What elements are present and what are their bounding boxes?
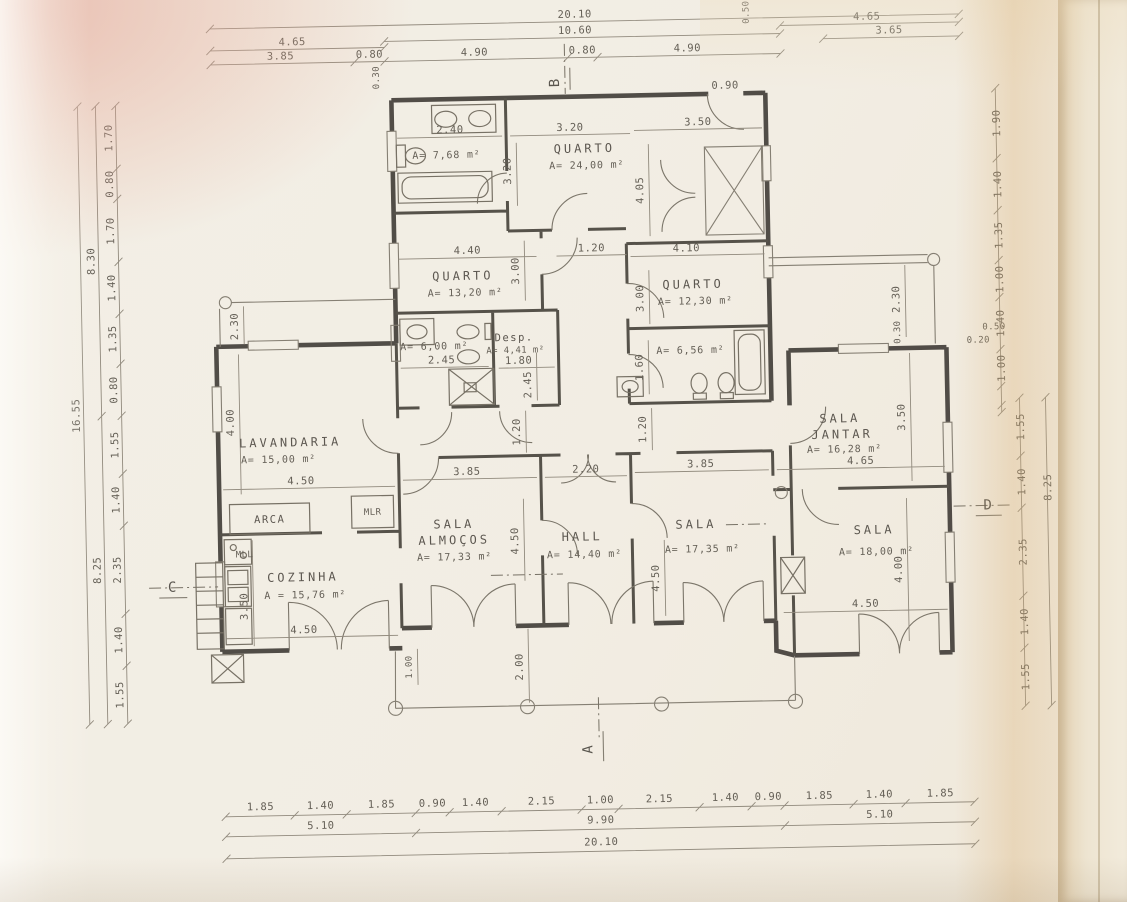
dim-label: 20.10 [557, 8, 591, 21]
dim-label: 20.10 [584, 836, 618, 849]
dim-label: 9.90 [587, 814, 615, 827]
sink-icon [407, 325, 427, 339]
dim-label: 3.00 [510, 257, 523, 285]
dim-label: 2.30 [890, 285, 903, 313]
bidet-icon [718, 372, 734, 392]
section-marker-b: B [547, 79, 563, 88]
dim-label: 2.20 [572, 463, 600, 476]
dim-label: 10.60 [558, 24, 592, 37]
dim-label: 1.40 [106, 274, 119, 302]
dim-label: 0.90 [711, 79, 739, 92]
room-name-quarto-main: QUARTO [554, 141, 616, 156]
room-area-lavandaria: A= 15,00 m² [241, 454, 316, 467]
dim-label: 4.40 [454, 245, 482, 258]
room-name-sala-almocos-2: ALMOÇOS [418, 532, 490, 547]
dim-label: 4.00 [893, 555, 906, 583]
dim-label: 1.00 [996, 354, 1009, 382]
room-area-despensa: A= 4,41 m² [486, 345, 544, 356]
dim-label: 1.20 [637, 416, 650, 444]
dim-label: 2.45 [428, 354, 456, 367]
floor-plan-drawing: B A C D 20.10 10.60 4.65 3.85 0.80 4.90 … [0, 0, 1127, 902]
room-area-sala-jantar: A= 16,28 m² [807, 444, 882, 457]
dim-label: 0.30 [893, 320, 903, 343]
dim-label: 1.70 [103, 124, 116, 152]
dim-label: 4.05 [634, 177, 647, 205]
dim-label: 0.50 [982, 322, 1005, 332]
dim-label: 1.40 [110, 486, 123, 514]
dim-label: 1.00 [994, 265, 1007, 293]
dim-label: 3.20 [502, 157, 515, 185]
dim-label: 1.40 [307, 800, 335, 813]
dim-label: 1.60 [633, 354, 646, 382]
dimensions-bottom: 1.85 1.40 1.85 0.90 1.40 2.15 1.00 2.15 … [247, 787, 955, 855]
dim-label: 8.30 [85, 248, 98, 276]
dim-label: 2.15 [528, 795, 556, 808]
dim-label: 1.90 [991, 109, 1004, 137]
scanned-floor-plan-photo: B A C D 20.10 10.60 4.65 3.85 0.80 4.90 … [0, 0, 1127, 902]
dim-label: 1.35 [993, 221, 1006, 249]
section-marker-a: A [580, 745, 596, 754]
dim-label: 3.65 [875, 24, 903, 37]
dim-label: 3.85 [453, 466, 481, 479]
section-marker-c: C [168, 580, 177, 596]
room-area-quarto-main: A= 24,00 m² [549, 160, 624, 173]
dim-label: 4.00 [225, 409, 238, 437]
dim-label: 0.80 [104, 170, 117, 198]
equip-label-mll: MLL [236, 550, 254, 560]
dim-label: 3.20 [556, 121, 584, 134]
toilet-icon [457, 325, 479, 339]
room-area-bath-mid: A= 6,00 m² [400, 341, 468, 353]
equip-label-arca: ARCA [254, 514, 286, 527]
dim-label: 1.40 [866, 788, 894, 801]
dim-label: 3.50 [684, 116, 712, 129]
room-area-sala-center: A= 17,35 m² [665, 543, 740, 556]
dim-label: 3.50 [896, 403, 909, 431]
dim-label: 16.55 [70, 399, 83, 433]
dim-label: 4.90 [674, 42, 702, 55]
dim-label: 1.40 [113, 626, 126, 654]
dim-label: 0.90 [419, 797, 447, 810]
dim-label: 2.15 [646, 793, 674, 806]
porch-column-icon [520, 700, 534, 714]
dim-label: 1.40 [712, 791, 740, 804]
room-name-hall: HALL [562, 529, 603, 544]
dim-label: 4.50 [852, 598, 880, 611]
dim-label: 5.10 [307, 820, 335, 833]
door-swing-arcs [278, 90, 939, 666]
room-name-sala-right: SALA [853, 522, 894, 537]
dim-label: 1.35 [107, 325, 120, 353]
porch-column-icon [654, 697, 668, 711]
dimensions-right: 1.90 1.40 1.35 1.00 1.40 1.00 0.50 0.20 … [962, 109, 1058, 692]
dim-label: 0.80 [356, 48, 384, 61]
toilet-icon [691, 373, 707, 393]
dim-label: 1.55 [109, 431, 122, 459]
dim-label: 5.10 [866, 808, 894, 821]
dim-label: 4.50 [650, 564, 663, 592]
dim-label: 1.85 [247, 801, 275, 814]
sink-icon [469, 110, 491, 126]
dim-label: 2.35 [111, 556, 124, 584]
dim-label: 1.85 [927, 787, 955, 800]
room-area-sala-almocos: A= 17,33 m² [417, 551, 492, 564]
dim-label: 4.10 [673, 242, 701, 255]
dim-label: 0.30 [372, 66, 382, 89]
dim-label: 1.80 [505, 355, 533, 368]
dim-label: 1.55 [1020, 663, 1033, 691]
grid-marker-icon [219, 297, 231, 309]
section-marker-d: D [983, 497, 992, 513]
dim-label: 8.25 [1042, 473, 1055, 501]
room-area-sala-right: A= 18,00 m² [839, 546, 914, 559]
room-name-quarto-right: QUARTO [662, 277, 724, 292]
equip-label-mlr: MLR [364, 508, 382, 518]
room-name-sala-center: SALA [675, 517, 716, 532]
dim-label: 0.80 [108, 376, 121, 404]
dim-label: 4.65 [853, 10, 881, 23]
room-area-bath-top: A= 7,68 m² [412, 150, 480, 162]
dim-label: 1.00 [404, 655, 414, 678]
room-area-quarto-mid: A= 13,20 m² [428, 287, 503, 300]
dim-label: 1.20 [511, 418, 524, 446]
room-name-lavandaria: LAVANDARIA [239, 434, 342, 450]
room-name-quarto-mid: QUARTO [432, 268, 494, 283]
dim-label: 8.25 [91, 557, 104, 585]
dim-label: 1.00 [587, 794, 615, 807]
dim-label: 4.50 [290, 624, 318, 637]
dim-label: 4.50 [287, 475, 315, 488]
dim-label: 4.65 [278, 36, 306, 49]
dim-label: 4.65 [847, 455, 875, 468]
dim-label: 3.85 [687, 458, 715, 471]
dim-label: 2.35 [1017, 538, 1030, 566]
kitchen-laundry-fixtures [187, 145, 806, 683]
dim-label: 4.50 [509, 527, 522, 555]
dim-label: 4.90 [461, 46, 489, 59]
dim-label: 1.70 [105, 217, 118, 245]
dim-label: 0.90 [755, 791, 783, 804]
porch-and-terrace [219, 253, 949, 719]
dim-label: 3.00 [634, 285, 647, 313]
room-name-sala-jantar-2: JANTAR [811, 427, 873, 442]
dim-label: 1.55 [1015, 413, 1028, 441]
grid-marker-icon [928, 253, 940, 265]
dim-label: 0.80 [569, 44, 597, 57]
room-name-sala-jantar-1: SALA [819, 411, 860, 426]
dim-label: 2.30 [229, 313, 242, 341]
dim-label: 1.85 [368, 798, 396, 811]
room-area-cozinha: A = 15,76 m² [264, 589, 346, 602]
room-area-quarto-right: A= 12,30 m² [658, 296, 733, 309]
dim-label: 3.85 [267, 50, 295, 63]
room-name-sala-almocos-1: SALA [433, 517, 474, 532]
dim-label: 0.50 [741, 0, 751, 23]
dim-label: 1.85 [806, 790, 834, 803]
dim-label: 2.40 [436, 124, 464, 137]
dim-label: 1.55 [114, 681, 127, 709]
dim-label: 3.50 [238, 593, 251, 621]
dim-label: 2.00 [513, 653, 526, 681]
dim-label: 0.20 [967, 335, 990, 345]
dim-label: 1.40 [992, 170, 1005, 198]
dimensions-top: 20.10 10.60 4.65 3.85 0.80 4.90 0.80 4.9… [266, 0, 904, 91]
dim-label: 2.45 [522, 371, 535, 399]
dim-label: 1.40 [1019, 608, 1032, 636]
room-name-despensa: Desp. [494, 332, 533, 345]
floor-plan-sheet: B A C D 20.10 10.60 4.65 3.85 0.80 4.90 … [0, 0, 1127, 902]
room-name-cozinha: COZINHA [267, 569, 339, 584]
dim-label: 1.40 [1016, 468, 1029, 496]
room-area-hall: A= 14,40 m² [547, 549, 622, 562]
dim-label: 1.40 [462, 796, 490, 809]
room-labels: A= 7,68 m² QUARTO A= 24,00 m² QUARTO A= … [228, 135, 915, 603]
room-area-bath-right: A= 6,56 m² [656, 345, 724, 357]
dim-label: 1.20 [578, 242, 606, 255]
